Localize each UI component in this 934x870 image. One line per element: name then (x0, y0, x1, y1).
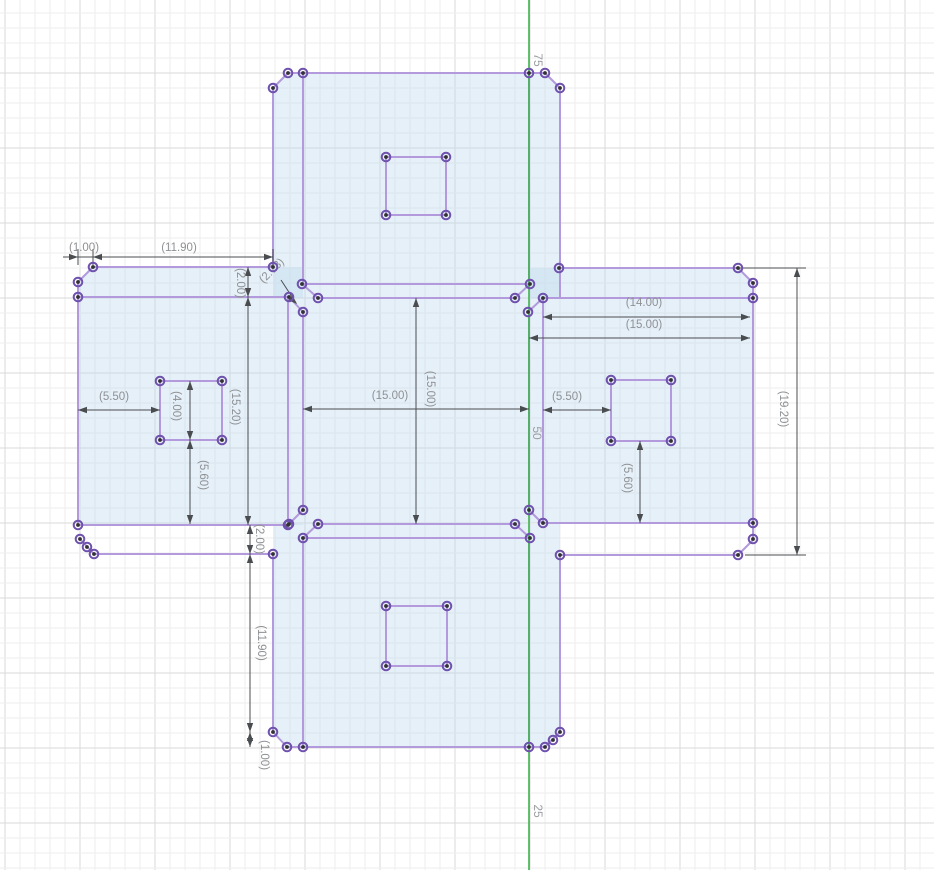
dimension-label[interactable]: (15.00) (626, 319, 663, 331)
axis-scale-label: 75 (531, 53, 545, 67)
dimension-label[interactable]: (15.00) (424, 371, 436, 408)
dimension-label[interactable]: (5.60) (197, 460, 209, 490)
vertex-core (158, 379, 162, 383)
vertex-core (551, 738, 555, 742)
dimension-arrowhead (247, 738, 253, 747)
vertex-core (384, 604, 388, 608)
vertex-core (543, 745, 547, 749)
vertex-core (384, 155, 388, 159)
dimension-label[interactable]: (15.20) (229, 389, 241, 426)
vertex-core (444, 213, 448, 217)
vertex-core (558, 730, 562, 734)
vertex-core (669, 378, 673, 382)
vertex-core (271, 265, 275, 269)
dimension-label[interactable]: (1.00) (69, 242, 99, 254)
dimension-label[interactable]: (2.00) (253, 524, 265, 554)
vertex-core (526, 310, 530, 314)
vertex-core (527, 745, 531, 749)
vertex-core (751, 521, 755, 525)
vertex-core (384, 213, 388, 217)
dimension-arrowhead (93, 254, 102, 260)
vertex-core (543, 71, 547, 75)
vertex-core (541, 521, 545, 525)
dimension-arrowhead (794, 546, 800, 555)
vertex-core (609, 439, 613, 443)
vertex-core (528, 282, 532, 286)
sketch-viewport[interactable]: (1.00)(11.90)(2.00)(2.73)(15.20)(5.50)(4… (0, 0, 934, 870)
vertex-core (301, 745, 305, 749)
vertex-core (287, 295, 291, 299)
vertex-core (285, 745, 289, 749)
vertex-core (76, 523, 80, 527)
dimension-label[interactable]: (5.50) (99, 391, 129, 403)
dimension-arrowhead (794, 268, 800, 277)
vertex-core (527, 508, 531, 512)
vertex-core (513, 522, 517, 526)
vertex-core (220, 438, 224, 442)
dimension-label[interactable]: (11.90) (161, 242, 197, 254)
sketch-vertex[interactable] (83, 543, 92, 552)
vertex-core (669, 439, 673, 443)
dimension-label[interactable]: (11.90) (255, 625, 267, 661)
dimension-label[interactable]: (5.50) (552, 391, 582, 403)
vertex-core (609, 378, 613, 382)
vertex-core (736, 266, 740, 270)
dimension-label[interactable]: (1.00) (258, 740, 270, 770)
vertex-core (444, 155, 448, 159)
vertex-core (513, 296, 517, 300)
vertex-core (76, 295, 80, 299)
vertex-core (286, 71, 290, 75)
vertex-core (301, 310, 305, 314)
vertex-core (301, 71, 305, 75)
dimension-label[interactable]: (15.00) (372, 390, 409, 402)
vertex-core (528, 536, 532, 540)
vertex-core (445, 604, 449, 608)
vertex-core (301, 536, 305, 540)
vertex-core (558, 86, 562, 90)
vertex-core (751, 296, 755, 300)
vertex-core (91, 265, 95, 269)
vertex-core (316, 296, 320, 300)
axis-scale-label: 25 (531, 804, 545, 818)
vertex-core (78, 537, 82, 541)
dimension-label[interactable]: (2.00) (234, 268, 246, 298)
vertex-core (287, 522, 291, 526)
vertex-core (751, 537, 755, 541)
vertex-core (301, 508, 305, 512)
vertex-core (751, 281, 755, 285)
dimension-label[interactable]: (19.20) (777, 391, 789, 428)
dimension-label[interactable]: (14.00) (626, 297, 663, 309)
dimension-arrowhead (247, 554, 253, 563)
vertex-core (92, 552, 96, 556)
dimension-arrowhead (264, 254, 273, 260)
vertex-core (736, 553, 740, 557)
vertex-core (557, 266, 561, 270)
vertex-core (316, 522, 320, 526)
axis-scale-label: 50 (530, 426, 544, 440)
vertex-core (445, 664, 449, 668)
vertex-core (271, 552, 275, 556)
vertex-core (558, 553, 562, 557)
dimension-arrowhead (247, 525, 253, 534)
vertex-core (384, 664, 388, 668)
vertex-core (527, 71, 531, 75)
dimension-arrowhead (247, 723, 253, 732)
vertex-core (300, 282, 304, 286)
vertex-core (541, 296, 545, 300)
vertex-core (76, 280, 80, 284)
vertex-core (158, 438, 162, 442)
vertex-core (271, 730, 275, 734)
sketch-canvas[interactable]: (1.00)(11.90)(2.00)(2.73)(15.20)(5.50)(4… (0, 0, 934, 870)
panel-face[interactable] (273, 524, 560, 747)
vertex-core (85, 545, 89, 549)
dimension-arrowhead (69, 254, 78, 260)
dimension-label[interactable]: (4.00) (170, 391, 182, 421)
dimension-label[interactable]: (5.60) (621, 463, 633, 493)
vertex-core (220, 379, 224, 383)
panel-face[interactable] (273, 73, 560, 298)
vertex-core (271, 86, 275, 90)
